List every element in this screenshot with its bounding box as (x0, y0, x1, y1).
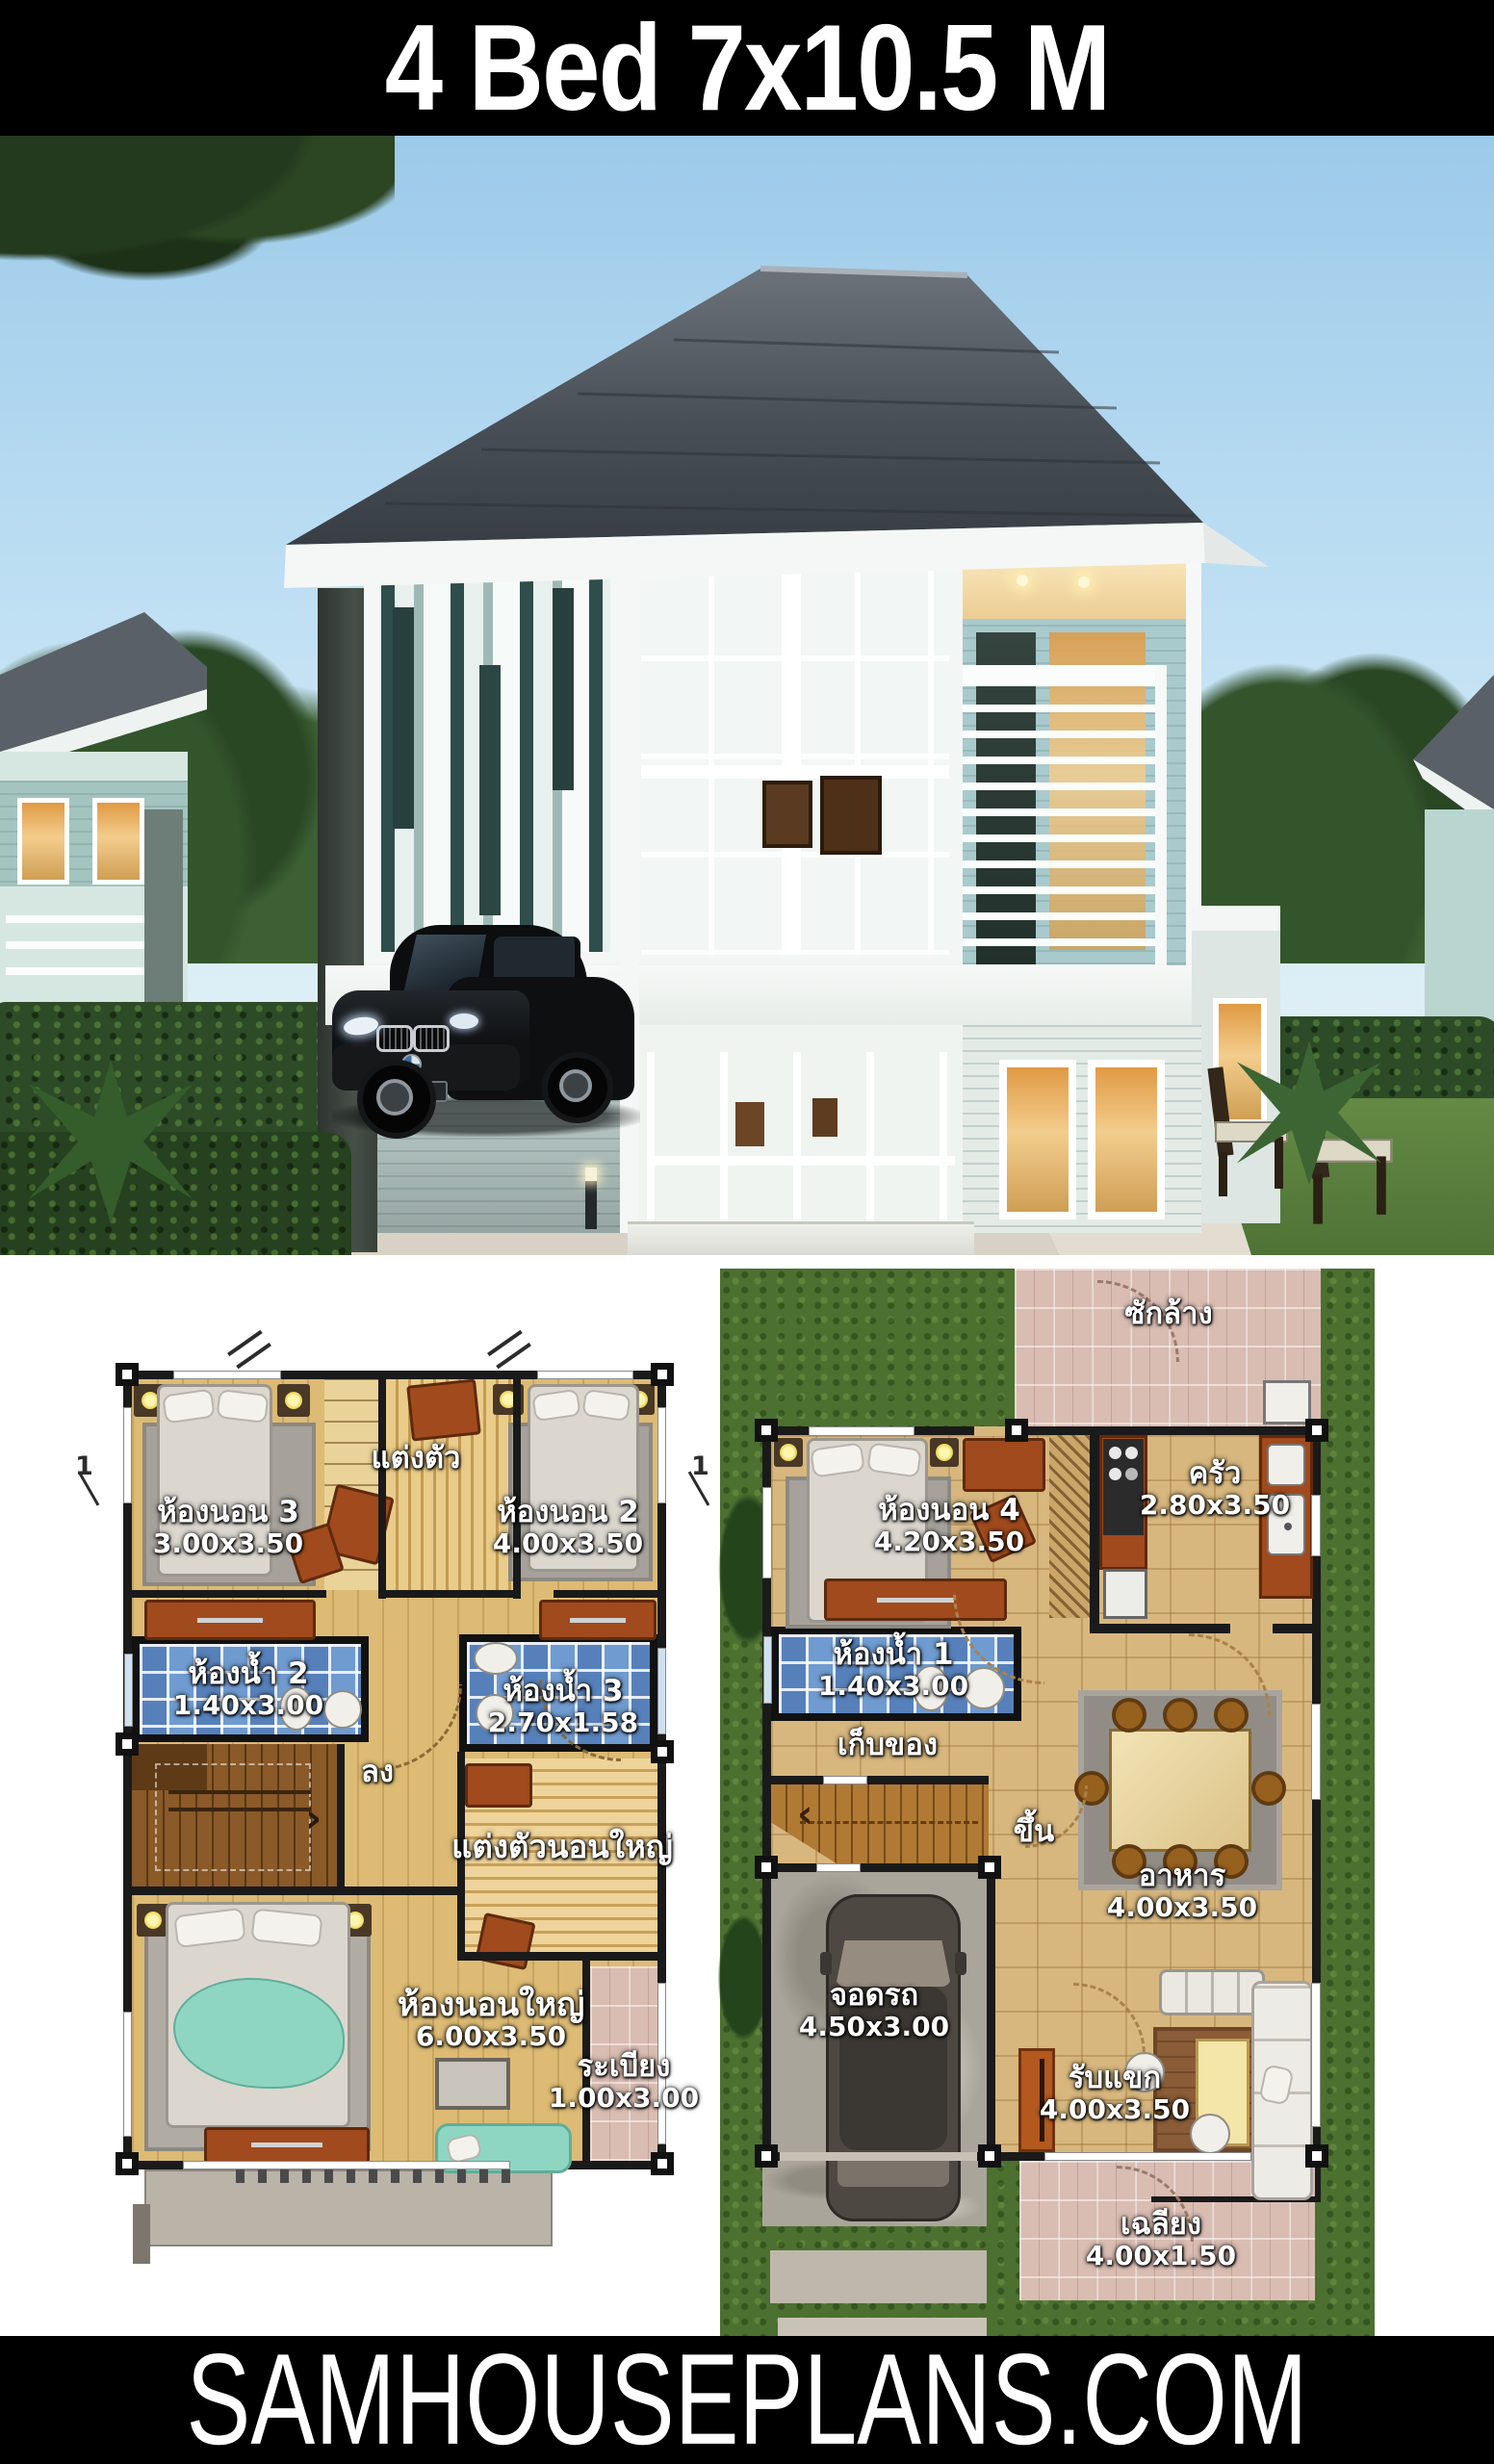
room-label-bath1: ห้องน้ำ 1 1.40x3.00 (818, 1638, 968, 1702)
room-dim: 1.40x3.00 (173, 1690, 323, 1721)
room-label-laundry: ซักล้าง (1124, 1297, 1212, 1330)
brand-text: SAMHOUSEPLANS.COM (186, 2336, 1307, 2464)
room-name: อาหาร (1107, 1860, 1257, 1892)
roof-mark (227, 1330, 271, 1369)
room-dim: 2.70x1.58 (488, 1707, 638, 1738)
room-name: ห้องน้ำ 1 (818, 1638, 968, 1671)
car-wheel (542, 1052, 613, 1123)
room-label-carpark: จอดรถ 4.50x3.00 (799, 1979, 949, 2042)
room-label-dressing: แต่งตัว (372, 1442, 461, 1475)
room-dim: 4.00x3.50 (1107, 1892, 1257, 1923)
laundry-machine (1263, 1380, 1311, 1424)
stair-arrow: › (305, 1794, 322, 1841)
room-label-porch: เฉลียง 4.00x1.50 (1086, 2208, 1236, 2271)
bush-front-left (0, 1132, 351, 1255)
room-label-bedroom3: ห้องนอน 3 3.00x3.50 (153, 1496, 303, 1559)
room-label-bath3: ห้องน้ำ 3 2.70x1.58 (488, 1675, 638, 1738)
bollard-light (585, 1168, 597, 1229)
room-dim: 4.50x3.00 (799, 2012, 949, 2042)
room-dim: 1.40x3.00 (818, 1671, 968, 1702)
room-dim: 4.00x3.50 (1040, 2094, 1190, 2125)
room-name: แต่งตัว (372, 1442, 461, 1475)
room-dim: 3.00x3.50 (153, 1528, 303, 1559)
room-name: ห้องนอน 3 (153, 1496, 303, 1528)
room-name: ห้องนอน 2 (493, 1496, 643, 1528)
drive-strip (770, 2250, 987, 2303)
room-label-storage: เก็บของ (837, 1729, 938, 1761)
room-name: ห้องนอน 4 (874, 1494, 1024, 1527)
room-dim: 4.00x1.50 (1086, 2241, 1236, 2271)
room-label-bedroom2: ห้องนอน 2 4.00x3.50 (493, 1496, 643, 1559)
car-headlight (450, 1014, 478, 1029)
stair-arrow: ‹ (797, 1792, 812, 1836)
car (332, 917, 640, 1143)
plan2-terrace-post (133, 2204, 150, 2264)
room-name: เฉลียง (1086, 2208, 1236, 2241)
room-dim: 4.00x3.50 (493, 1528, 643, 1559)
room-label-master-dressing: แต่งตัวนอนใหญ่ (451, 1831, 673, 1863)
house-render-photo: SAMHOUSEPLANS.COM (0, 136, 1494, 1255)
room-dim: 1.00x3.00 (549, 2083, 699, 2114)
section-marker-left: 1 (75, 1451, 93, 1481)
room-name: เก็บของ (837, 1729, 938, 1761)
plan2-stairs: › (132, 1744, 337, 1891)
room-dim: 6.00x3.50 (398, 2021, 584, 2052)
room-dim: 4.20x3.50 (874, 1527, 1024, 1557)
roof-mark (487, 1330, 531, 1369)
stairs-up-label: ขึ้น (1014, 1815, 1054, 1848)
room-name: แต่งตัวนอนใหญ่ (451, 1831, 673, 1863)
plan-car (826, 1894, 961, 2221)
plan1-closet (1049, 1435, 1092, 1618)
room-label-kitchen: ครัว 2.80x3.50 (1140, 1457, 1290, 1521)
plan2-door-teeth (236, 2169, 510, 2183)
drive-strip (778, 2318, 987, 2336)
room-label-dining: อาหาร 4.00x3.50 (1107, 1860, 1257, 1923)
poster-canvas: 4 Bed 7x10.5 M (0, 0, 1494, 2464)
room-label-master-bedroom: ห้องนอนใหญ่ 6.00x3.50 (398, 1989, 584, 2052)
car-grille (413, 1025, 450, 1052)
car-grille (376, 1025, 413, 1052)
room-name: จอดรถ (799, 1979, 949, 2012)
stairs-down-label: ลง (361, 1756, 394, 1788)
room-name: ซักล้าง (1124, 1297, 1212, 1330)
room-name: ระเบียง (549, 2050, 699, 2083)
room-label-bedroom4: ห้องนอน 4 4.20x3.50 (874, 1494, 1024, 1557)
room-label-bath2: ห้องน้ำ 2 1.40x3.00 (173, 1657, 323, 1721)
room-name: ครัว (1140, 1457, 1290, 1490)
car-wheel (357, 1060, 436, 1139)
room-label-balcony: ระเบียง 1.00x3.00 (549, 2050, 699, 2114)
room-name: รับแขก (1040, 2062, 1190, 2094)
room-name: ห้องนอนใหญ่ (398, 1989, 584, 2021)
room-name: ห้องน้ำ 2 (173, 1657, 323, 1690)
room-dim: 2.80x3.50 (1140, 1490, 1290, 1521)
room-label-living: รับแขก 4.00x3.50 (1040, 2062, 1190, 2125)
room-name: ห้องน้ำ 3 (488, 1675, 638, 1707)
bottom-banner: SAMHOUSEPLANS.COM (0, 2336, 1494, 2464)
